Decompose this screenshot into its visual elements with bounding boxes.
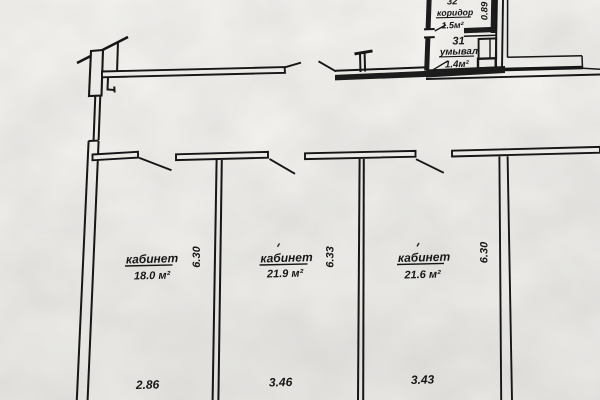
svg-text:6.33: 6.33 <box>325 246 337 267</box>
svg-text:кабинет: кабинет <box>126 251 179 266</box>
svg-text:21.6 м²: 21.6 м² <box>403 269 441 282</box>
svg-text:32: 32 <box>447 0 459 7</box>
svg-text:21.9 м²: 21.9 м² <box>266 268 304 281</box>
svg-text:0.89: 0.89 <box>480 1 491 20</box>
svg-text:2.86: 2.86 <box>135 377 160 392</box>
svg-text:6.30: 6.30 <box>479 241 491 263</box>
svg-text:1.5м²: 1.5м² <box>441 20 464 31</box>
svg-text:кабинет: кабинет <box>398 250 451 265</box>
svg-text:6.30: 6.30 <box>191 245 203 267</box>
svg-text:3.46: 3.46 <box>269 375 293 390</box>
svg-text:коридор: коридор <box>437 7 474 18</box>
svg-text:1.4м²: 1.4м² <box>445 59 470 71</box>
svg-text:кабинет: кабинет <box>260 250 313 265</box>
svg-text:18.0 м²: 18.0 м² <box>134 270 171 283</box>
svg-text:3.43: 3.43 <box>411 372 435 387</box>
